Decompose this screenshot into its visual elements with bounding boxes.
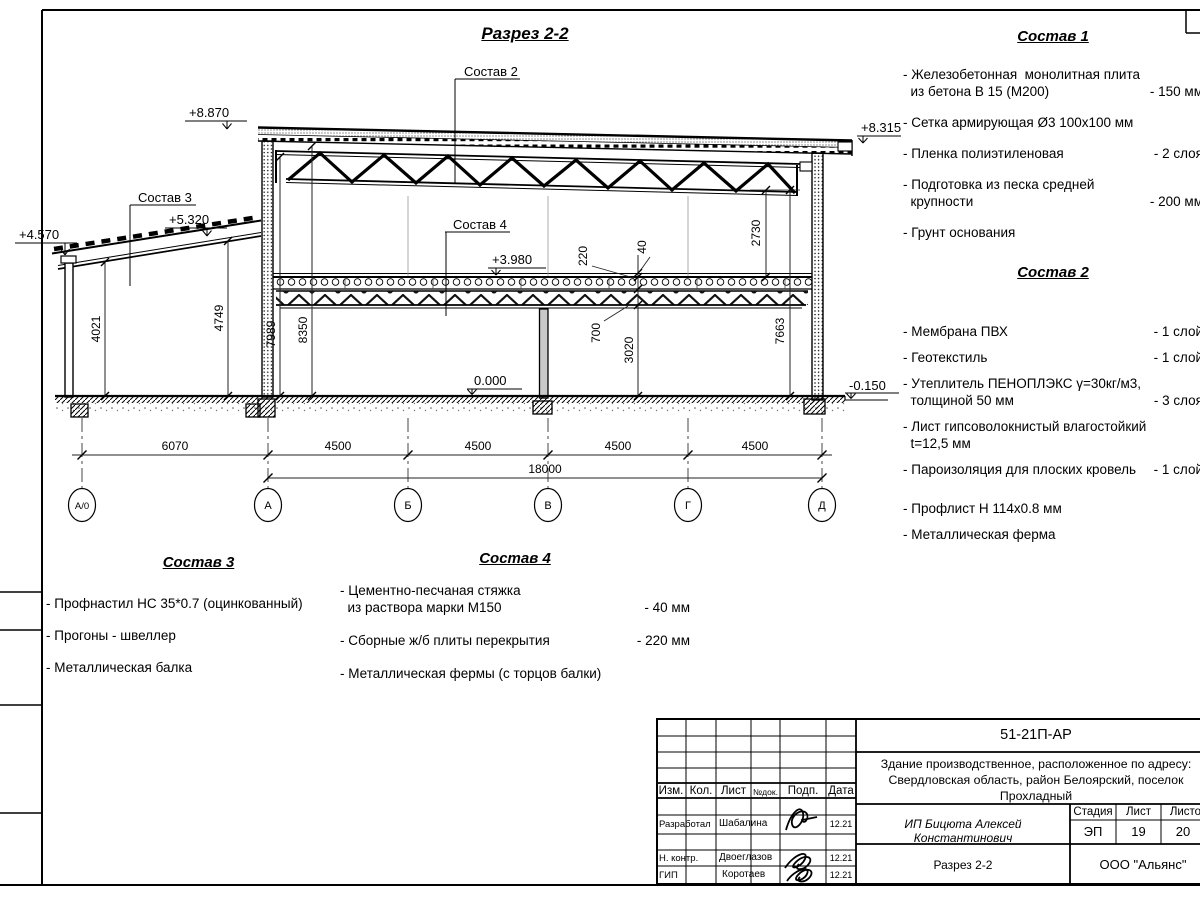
list-item: - Грунт основания [903, 224, 1200, 241]
main-building [258, 128, 852, 401]
item-value: - 3 слоя [1148, 392, 1200, 409]
annex-building [52, 217, 261, 397]
wall-axis-d [812, 153, 823, 400]
list-item: - Мембрана ПВХ - 1 слой [903, 323, 1200, 340]
list-item: - Сборные ж/б плиты перекрытия - 220 мм [340, 632, 690, 649]
margin-fold-marks [0, 592, 42, 813]
roof-package [258, 128, 852, 157]
floor-slab [273, 274, 812, 290]
item-text: - Цементно-песчаная стяжка из раствора м… [340, 582, 521, 616]
tb-date-gip: 12.21 [826, 870, 856, 880]
leader-sostav-3: Состав 3 [130, 190, 196, 286]
item-value: - 150 мм [1144, 83, 1200, 100]
svg-text:-0.150: -0.150 [849, 378, 886, 393]
item-text: - Металлическая ферма [903, 526, 1056, 543]
list-item: - Прогоны - швеллер [46, 627, 351, 644]
dim-7989: 7989 [264, 320, 278, 347]
item-text: - Железобетонная монолитная плита из бет… [903, 66, 1140, 100]
list-item: - Пленка полиэтиленовая - 2 слоя [903, 145, 1200, 162]
dim-4021: 4021 [89, 315, 103, 342]
list-item: - Железобетонная монолитная плита из бет… [903, 66, 1200, 100]
tb-col-list: Лист [716, 785, 751, 797]
tb-stage-value: ЭП [1070, 824, 1116, 839]
list-item: - Подготовка из песка средней крупности … [903, 176, 1200, 210]
tb-col-podp: Подп. [780, 785, 826, 797]
composition-list-1: Состав 1 - Железобетонная монолитная пли… [903, 28, 1200, 255]
axis-bubbles [69, 489, 836, 522]
list-item: - Лист гипсоволокнистый влагостойкий t=1… [903, 418, 1200, 452]
item-value: - 1 слой [1148, 349, 1200, 366]
tb-date-developer: 12.21 [826, 819, 856, 829]
vertical-dim-ticks [101, 142, 794, 400]
tb-object-description: Здание производственное, расположенное п… [856, 756, 1200, 804]
annex-wall-capital [61, 256, 76, 263]
dim-span-3: 4500 [465, 439, 492, 453]
dim-span-4: 4500 [605, 439, 632, 453]
item-value: - 220 мм [631, 632, 690, 649]
dim-8350: 8350 [296, 316, 310, 343]
signature-scribbles [785, 809, 817, 881]
tb-sheet-label: Лист [1116, 806, 1161, 818]
list-item: - Металлическая балка [46, 659, 351, 676]
item-text: - Мембрана ПВХ [903, 323, 1008, 340]
tb-customer: ИП Бицюта Алексей Константинович [856, 817, 1070, 845]
list-item: - Утеплитель ПЕНОПЛЭКС γ=30кг/м3, толщин… [903, 375, 1200, 409]
item-value: - 2 слоя [1148, 145, 1200, 162]
item-text: - Профнастил НС 35*0.7 (оцинкованный) [46, 595, 303, 612]
list-item: - Металлическая фермы (с торцов балки) [340, 665, 690, 682]
tb-role-ncontrol: Н. контр. [659, 853, 716, 864]
tb-name-ncontrol: Двоеглазов [719, 852, 781, 863]
list-item: - Профнастил НС 35*0.7 (оцинкованный) [46, 595, 351, 612]
item-text: - Профлист Н 114х0.8 мм [903, 500, 1062, 517]
tb-col-ndok: №док. [751, 787, 780, 797]
annex-left-wall [65, 263, 73, 397]
composition-title: Состав 1 [903, 28, 1200, 45]
level-0000: 0.000 [467, 373, 522, 395]
svg-text:0.000: 0.000 [474, 373, 507, 388]
dim-40: 40 [635, 240, 649, 254]
tb-role-developer: Разработал [659, 819, 716, 830]
dim-span-2: 4500 [325, 439, 352, 453]
tb-name-developer: Шабалина [719, 818, 779, 829]
dim-span-5: 4500 [742, 439, 769, 453]
dim-span-1: 6070 [162, 439, 189, 453]
axis-labels: А/0 А Б В Г Д [75, 500, 826, 512]
roof-truss [276, 150, 812, 196]
item-text: - Подготовка из песка средней крупности [903, 176, 1094, 210]
item-text: - Металлическая балка [46, 659, 192, 676]
tb-date-ncontrol: 12.21 [826, 853, 856, 863]
drawing-view-title: Разрез 2-2 [440, 24, 610, 44]
item-value: - 200 мм [1144, 193, 1200, 210]
ground-floor [55, 396, 888, 417]
svg-text:+8.870: +8.870 [189, 105, 229, 120]
axis-label-a: А [264, 500, 272, 512]
drawing-sheet: 6070 4500 4500 4500 4500 18000 А/0 А Б В… [0, 0, 1200, 900]
list-item: - Цементно-песчаная стяжка из раствора м… [340, 582, 690, 616]
dim-4749: 4749 [212, 304, 226, 331]
axis-label-b: Б [404, 500, 411, 512]
leader-sostav-2: Состав 2 [455, 64, 520, 183]
svg-text:Состав 3: Состав 3 [138, 190, 192, 205]
item-text: - Грунт основания [903, 224, 1015, 241]
floor-truss [276, 291, 808, 308]
tb-role-gip: ГИП [659, 870, 716, 881]
item-text: - Пленка полиэтиленовая [903, 145, 1064, 162]
dim-700: 700 [589, 323, 603, 343]
tb-doc-number: 51-21П-АР [856, 727, 1200, 743]
svg-text:+3.980: +3.980 [492, 252, 532, 267]
axis-label-g: Г [685, 500, 691, 512]
tb-stage-label: Стадия [1070, 806, 1116, 818]
item-text: - Утеплитель ПЕНОПЛЭКС γ=30кг/м3, толщин… [903, 375, 1141, 409]
wall-axis-a [262, 141, 273, 397]
tb-sheet-title: Разрез 2-2 [856, 858, 1070, 872]
composition-list-3: Состав 3 - Профнастил НС 35*0.7 (оцинков… [46, 554, 351, 691]
tb-sheets-total: 20 [1161, 824, 1200, 839]
tb-sheet-number: 19 [1116, 824, 1161, 839]
item-text: - Прогоны - швеллер [46, 627, 176, 644]
item-text: - Сетка армирующая Ø3 100х100 мм [903, 114, 1133, 131]
title-block: Изм. Кол. Лист №док. Подп. Дата Разработ… [656, 718, 1200, 885]
axis-label-a0: А/0 [75, 501, 89, 512]
item-text: - Геотекстиль [903, 349, 987, 366]
dim-total: 18000 [528, 462, 562, 476]
dim-7663: 7663 [773, 317, 787, 344]
composition-title: Состав 3 [46, 554, 351, 571]
dim-2730: 2730 [749, 219, 763, 246]
level-3980: +3.980 [488, 252, 546, 275]
svg-text:+5.320: +5.320 [169, 212, 209, 227]
svg-text:+4.570: +4.570 [19, 227, 59, 242]
interior-axis-lines [408, 196, 688, 276]
item-text: - Лист гипсоволокнистый влагостойкий t=1… [903, 418, 1146, 452]
composition-title: Состав 4 [340, 550, 690, 567]
item-text: - Сборные ж/б плиты перекрытия [340, 632, 550, 649]
item-value: - 1 слой [1148, 461, 1200, 478]
item-text: - Металлическая фермы (с торцов балки) [340, 665, 601, 682]
tb-sheets-label: Листов [1161, 806, 1200, 818]
svg-text:+8.315: +8.315 [861, 120, 901, 135]
axis-label-d: Д [818, 500, 826, 512]
composition-list-4: Состав 4 - Цементно-песчаная стяжка из р… [340, 550, 690, 698]
svg-text:Состав 4: Состав 4 [453, 217, 507, 232]
tb-col-data: Дата [826, 785, 856, 797]
item-value: - 1 слой [1148, 323, 1200, 340]
level-8315: +8.315 [857, 120, 901, 143]
list-item: - Сетка армирующая Ø3 100х100 мм [903, 114, 1200, 131]
list-item: - Геотекстиль - 1 слой [903, 349, 1200, 366]
column-axis-v [540, 309, 549, 398]
svg-text:Состав 2: Состав 2 [464, 64, 518, 79]
axis-label-v: В [544, 500, 551, 512]
dim-220: 220 [576, 246, 590, 266]
tb-col-kol: Кол. [686, 785, 716, 797]
list-item: - Пароизоляция для плоских кровель - 1 с… [903, 461, 1200, 478]
level-minus-0150: -0.150 [845, 378, 899, 399]
composition-list-2: Состав 2 - Мембрана ПВХ - 1 слой - Геоте… [903, 264, 1200, 552]
level-8870: +8.870 [185, 105, 247, 129]
list-item: - Профлист Н 114х0.8 мм [903, 500, 1200, 517]
item-text: - Пароизоляция для плоских кровель [903, 461, 1136, 478]
level-4570: +4.570 [15, 227, 77, 255]
dim-3020: 3020 [622, 336, 636, 363]
axis-grid: 6070 4500 4500 4500 4500 18000 А/0 А Б В… [69, 418, 836, 522]
tb-col-izm: Изм. [656, 785, 686, 797]
list-item: - Металлическая ферма [903, 526, 1200, 543]
composition-title: Состав 2 [903, 264, 1200, 281]
tb-company: ООО "Альянс" [1070, 857, 1200, 872]
item-value: - 40 мм [638, 599, 690, 616]
tb-name-gip: Коротаев [722, 869, 782, 880]
roof-edge-detail [838, 142, 852, 151]
